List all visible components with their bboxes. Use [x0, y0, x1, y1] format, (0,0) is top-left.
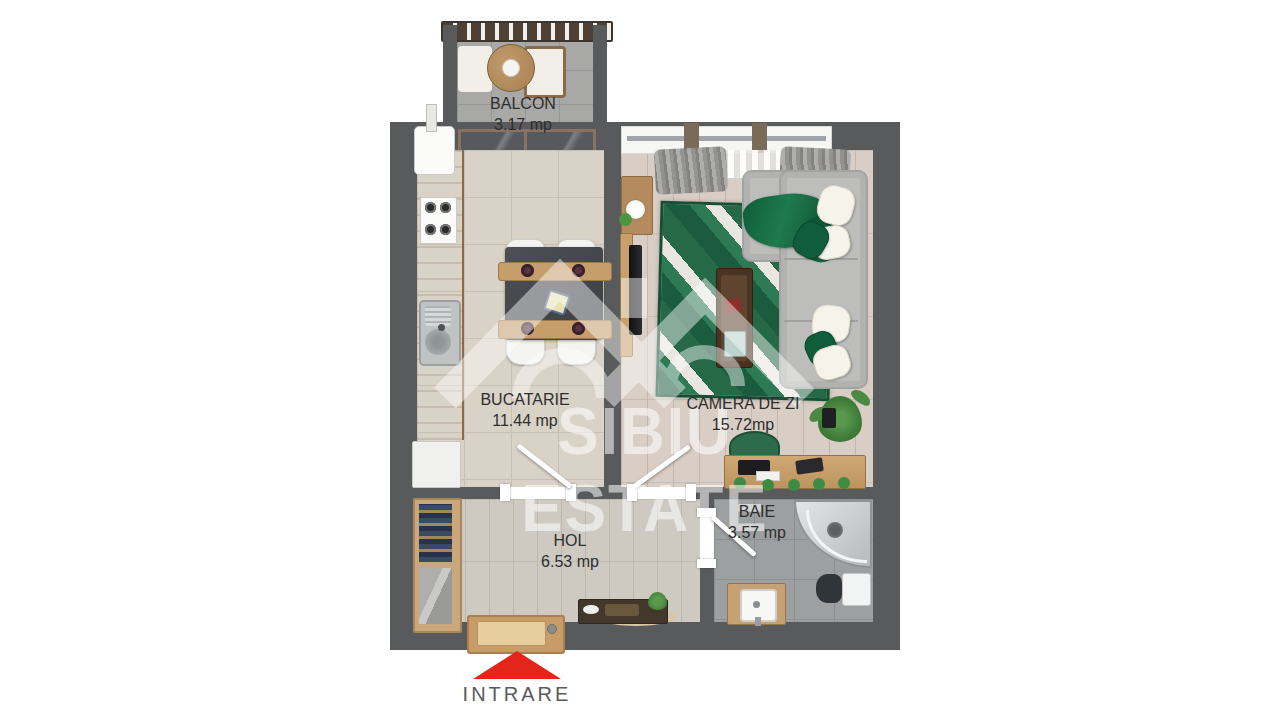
balcony-label: BALCON 3.17 mp [490, 93, 556, 135]
bathroom-vanity [727, 583, 786, 625]
living-room-area: 15.72mp [687, 414, 800, 435]
bathroom-name: BAIE [728, 501, 786, 522]
floor-plan: BALCON 3.17 mp [0, 0, 1270, 714]
bathroom-area: 3.57 mp [728, 522, 786, 543]
window-mullion [752, 123, 767, 153]
watermark-logo [425, 218, 885, 408]
water-heater [414, 126, 455, 175]
kitchen-label: BUCATARIE 11.44 mp [480, 389, 569, 431]
entrance-door-panel [477, 621, 546, 646]
balcony-name: BALCON [490, 93, 556, 114]
wall-bathroom-lower [700, 562, 714, 622]
toilet-tank [842, 573, 871, 606]
entrance-door-handle [547, 624, 557, 634]
bathroom-label: BAIE 3.57 mp [728, 501, 786, 543]
entrance-label: INTRARE [463, 683, 572, 706]
kitchen-area: 11.44 mp [480, 410, 569, 431]
living-room-name: CAMERA DE ZI [687, 393, 800, 414]
hall-label: HOL 6.53 mp [541, 530, 599, 572]
balcony-table-plate [502, 59, 520, 77]
living-room-label: CAMERA DE ZI 15.72mp [687, 393, 800, 435]
balcony-wall-right [593, 25, 607, 125]
wardrobe-mirror [419, 568, 452, 624]
console-plant [648, 592, 667, 610]
water-heater-pipe [426, 104, 437, 132]
hall-name: HOL [541, 530, 599, 551]
toilet-bowl [816, 574, 842, 603]
entrance-arrow-icon [473, 651, 561, 679]
balcony-wall-left [443, 25, 457, 125]
kitchen-name: BUCATARIE [480, 389, 569, 410]
curtain-left [654, 146, 728, 195]
hall-area: 6.53 mp [541, 551, 599, 572]
balcony-railing [441, 21, 613, 42]
bath-door-jamb-bottom [697, 559, 716, 568]
balcony-area: 3.17 mp [490, 114, 556, 135]
